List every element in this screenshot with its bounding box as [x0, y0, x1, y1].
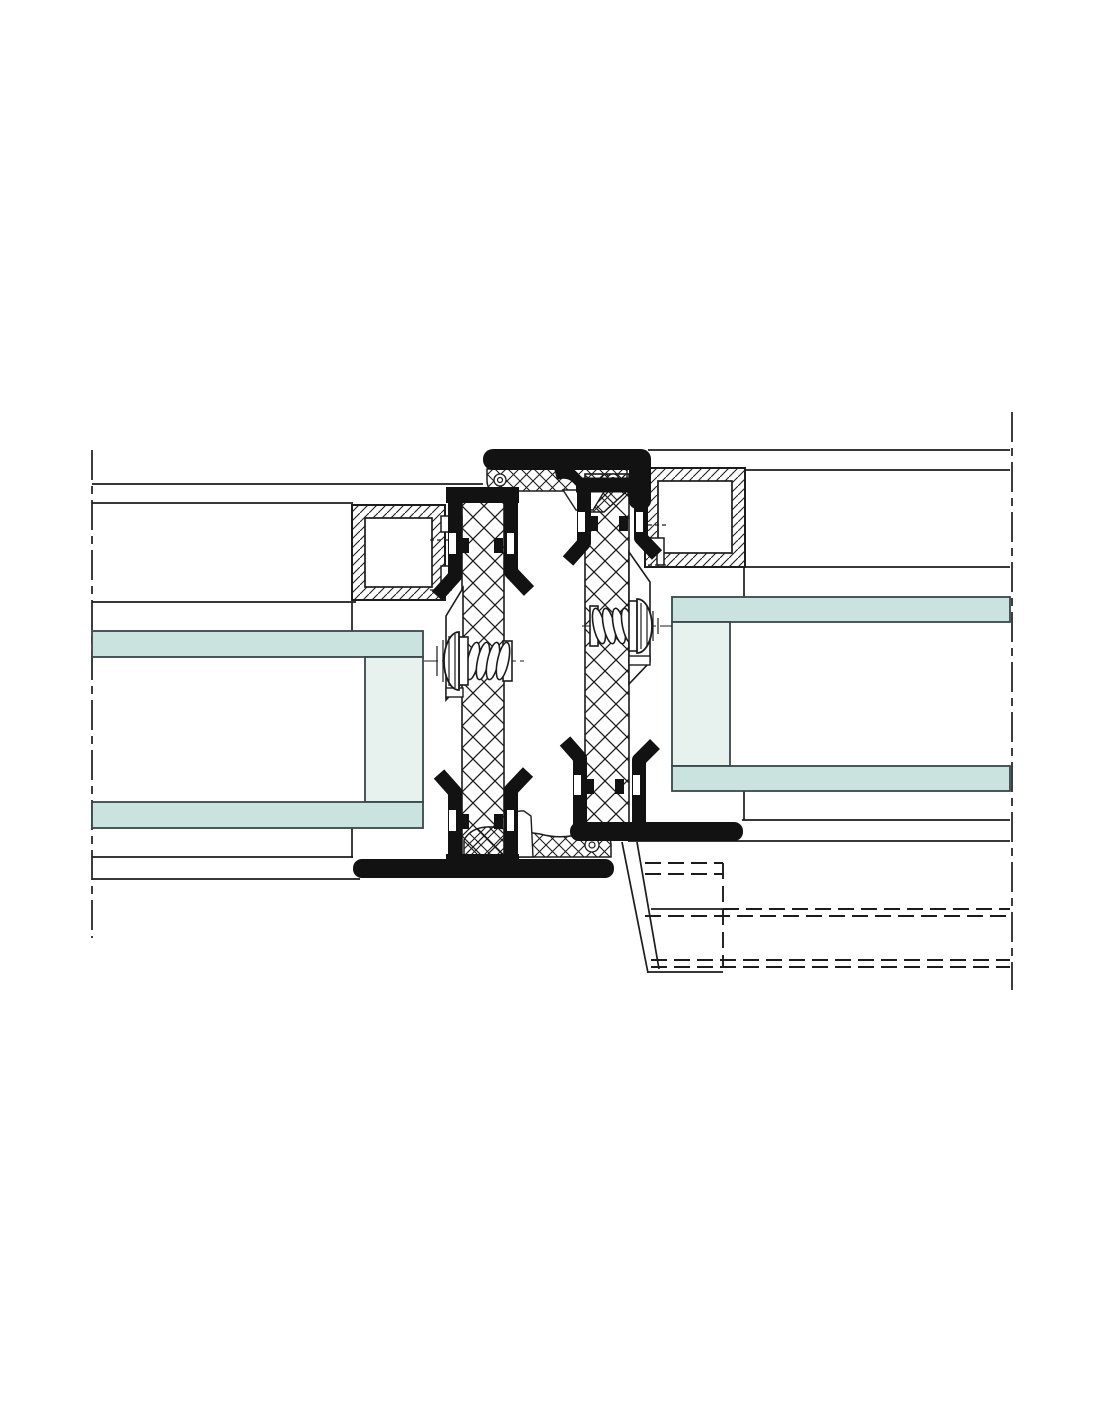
background	[0, 0, 1100, 1422]
technical-drawing-page	[0, 0, 1100, 1422]
left-glass-pane-bottom	[92, 802, 423, 828]
left-screw-washer	[459, 637, 468, 685]
right-bracket-foot	[629, 656, 650, 665]
section-drawing	[0, 0, 1100, 1422]
bottom-right-gasket-bar	[570, 822, 743, 841]
left-glass-pane-top	[92, 631, 423, 657]
right-glass-spacer	[672, 622, 730, 766]
right-glass-pane-top	[672, 597, 1010, 622]
right-glass-pane-bottom	[672, 766, 1010, 791]
left-glass-spacer	[365, 657, 423, 802]
